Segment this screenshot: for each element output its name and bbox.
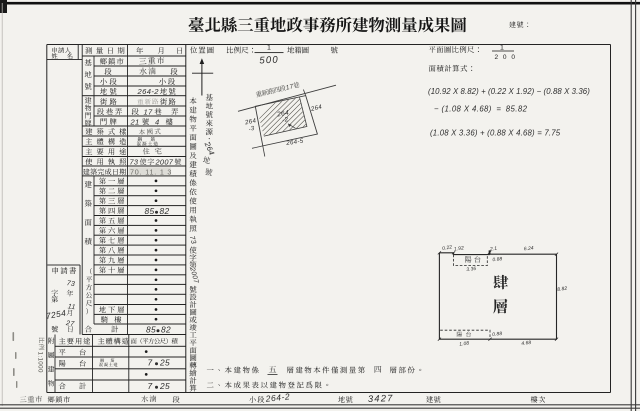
svg-text:70. 11. 1 3: 70. 11. 1 3	[130, 167, 172, 176]
svg-text:2 0 0: 2 0 0	[495, 54, 517, 61]
svg-text:4.68: 4.68	[521, 340, 532, 347]
svg-text:2007: 2007	[155, 157, 174, 166]
svg-text:27: 27	[65, 320, 76, 328]
svg-text:(1.08 X 3.36) + (0.88 X 4.68): (1.08 X 3.36) + (0.88 X 4.68) = 7.75	[430, 129, 561, 138]
svg-text:1: 1	[267, 45, 271, 52]
svg-text:73: 73	[66, 280, 75, 288]
svg-text:0.88: 0.88	[492, 331, 503, 338]
svg-text:7: 7	[148, 381, 153, 391]
svg-text:82: 82	[160, 206, 170, 216]
svg-text:6.24: 6.24	[524, 245, 535, 252]
svg-text:85: 85	[145, 206, 155, 216]
svg-text:7: 7	[148, 357, 153, 367]
svg-text:3427: 3427	[368, 392, 394, 404]
svg-text:(10.92 X 8.82) + (0.22 X 1.92): (10.92 X 8.82) + (0.22 X 1.92) − (0.88 X…	[428, 87, 590, 96]
svg-text:4: 4	[155, 117, 160, 126]
svg-text:264-2: 264-2	[137, 87, 160, 96]
svg-text:25: 25	[159, 381, 170, 391]
svg-text:21: 21	[130, 117, 140, 126]
svg-text:1:1000: 1:1000	[37, 352, 44, 373]
svg-text:3.36: 3.36	[466, 266, 477, 273]
svg-text:17: 17	[144, 107, 154, 116]
svg-text:85: 85	[146, 324, 156, 334]
svg-text:73: 73	[130, 157, 139, 166]
svg-text:82: 82	[161, 324, 171, 334]
svg-text:25: 25	[159, 357, 170, 367]
svg-text:500: 500	[259, 54, 279, 66]
svg-text:− (1.08 X 4.68) = 85.82: − (1.08 X 4.68) = 85.82	[434, 105, 528, 114]
svg-text:1: 1	[500, 45, 504, 52]
svg-text:0.88: 0.88	[492, 256, 503, 263]
